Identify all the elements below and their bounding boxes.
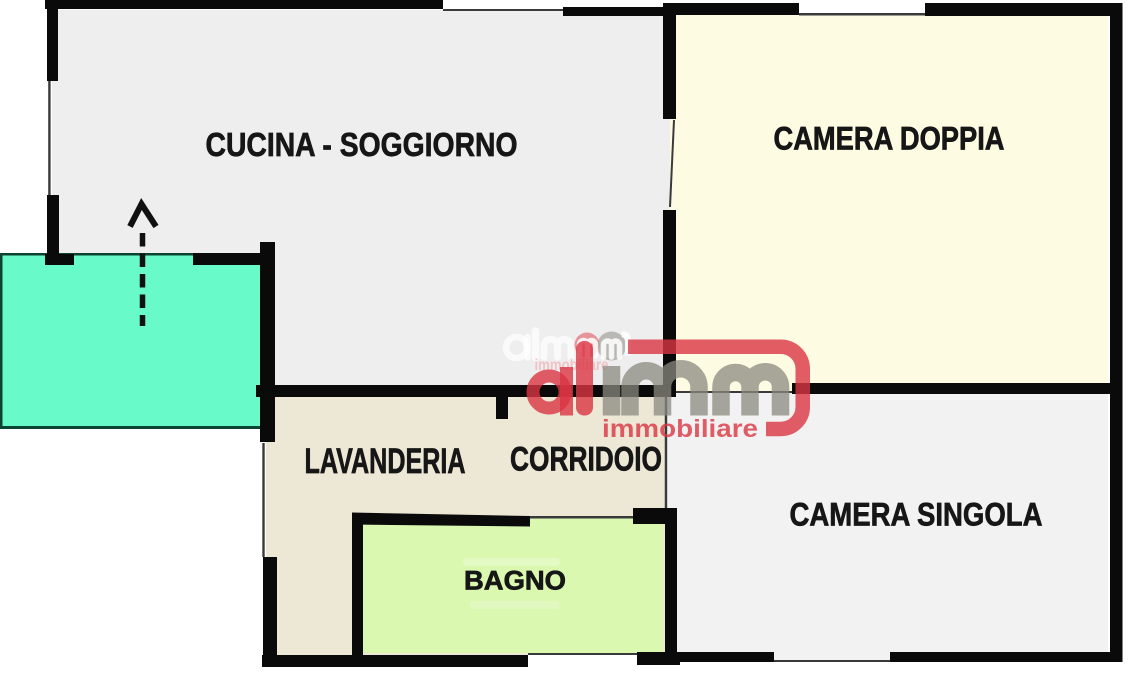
- svg-text:immobiliare: immobiliare: [602, 415, 758, 443]
- svg-text:CORRIDOIO: CORRIDOIO: [510, 441, 662, 479]
- svg-text:LAVANDERIA: LAVANDERIA: [305, 441, 466, 481]
- svg-text:CUCINA - SOGGIORNO: CUCINA - SOGGIORNO: [206, 126, 518, 163]
- svg-text:CAMERA SINGOLA: CAMERA SINGOLA: [790, 497, 1043, 533]
- svg-text:BAGNO: BAGNO: [464, 566, 566, 596]
- svg-text:CAMERA DOPPIA: CAMERA DOPPIA: [774, 121, 1005, 157]
